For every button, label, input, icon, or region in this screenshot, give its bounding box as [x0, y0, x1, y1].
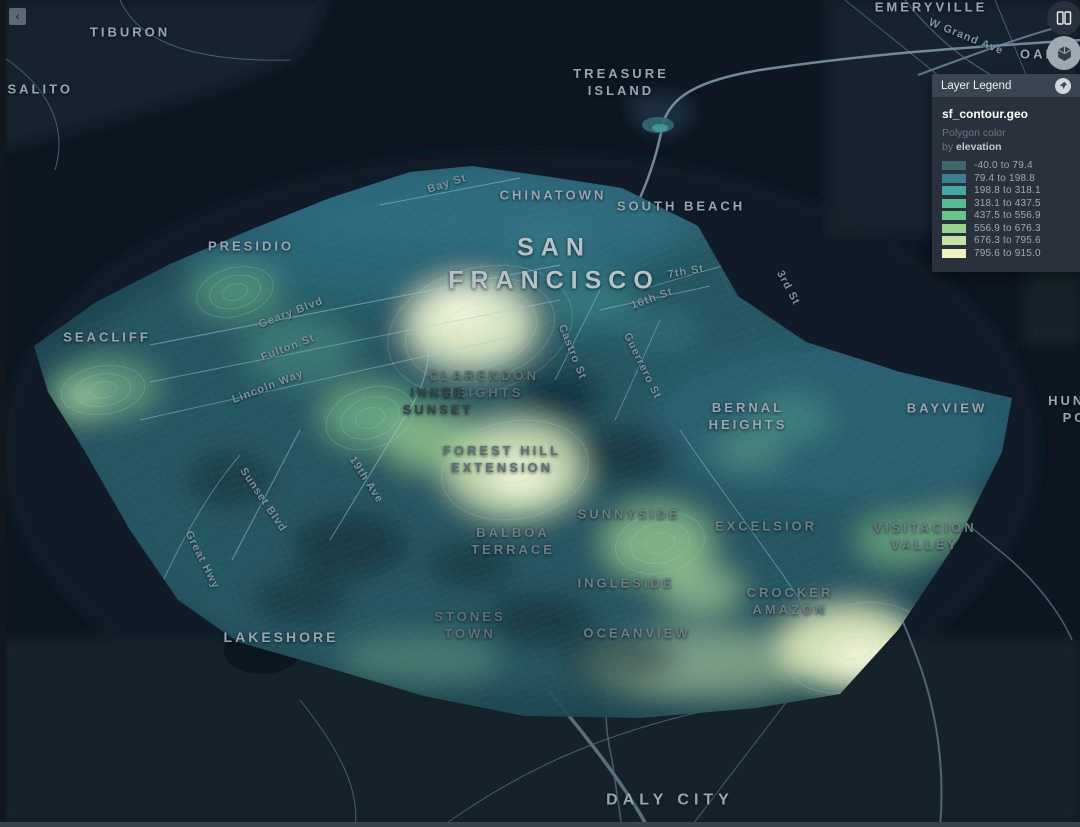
kepler-app: { "colors": { "map_bg": "#0d1721", "pane… — [0, 0, 1080, 827]
split-map-icon — [1056, 10, 1072, 26]
legend-swatch — [942, 161, 966, 170]
legend-range-label: 795.6 to 915.0 — [974, 248, 1041, 259]
legend-item: -40.0 to 79.4 — [942, 160, 1070, 173]
legend-swatch — [942, 224, 966, 233]
legend-swatch — [942, 236, 966, 245]
legend-pin-button[interactable] — [1055, 78, 1071, 94]
chevron-left-icon: ‹ — [16, 11, 20, 23]
bottom-edge — [0, 822, 1080, 827]
legend-swatch — [942, 199, 966, 208]
legend-swatch — [942, 174, 966, 183]
sidebar-collapse-button[interactable]: ‹ — [9, 8, 26, 25]
legend-swatch — [942, 186, 966, 195]
legend-by: by elevation — [942, 141, 1070, 153]
legend-range-label: 556.9 to 676.3 — [974, 223, 1041, 234]
layer-name: sf_contour.geo — [942, 107, 1070, 121]
legend-item: 437.5 to 556.9 — [942, 210, 1070, 223]
legend-item: 676.3 to 795.6 — [942, 235, 1070, 248]
legend-item: 795.6 to 915.0 — [942, 247, 1070, 260]
legend-range-label: 79.4 to 198.8 — [974, 173, 1035, 184]
pin-icon — [1059, 81, 1068, 90]
terrain-art — [0, 0, 1080, 827]
legend-field: elevation — [956, 141, 1002, 153]
legend-item: 556.9 to 676.3 — [942, 222, 1070, 235]
legend-item: 79.4 to 198.8 — [942, 172, 1070, 185]
map-canvas[interactable]: TIBURON SAUSALITO EMERYVILLE OAKLAND TRE… — [0, 0, 1080, 827]
legend-channel: Polygon color — [942, 126, 1070, 141]
legend-item: 198.8 to 318.1 — [942, 185, 1070, 198]
legend-title: Layer Legend — [941, 80, 1011, 92]
legend-range-label: 437.5 to 556.9 — [974, 210, 1041, 221]
toggle-3d-button[interactable] — [1047, 36, 1080, 70]
legend-item: 318.1 to 437.5 — [942, 197, 1070, 210]
legend-range-label: 198.8 to 318.1 — [974, 185, 1041, 196]
layer-legend-panel: Layer Legend sf_contour.geo Polygon colo… — [932, 74, 1080, 272]
cube-3d-icon — [1056, 45, 1073, 62]
legend-swatch — [942, 249, 966, 258]
collapsed-sidebar-edge — [0, 0, 6, 827]
legend-range-label: 676.3 to 795.6 — [974, 235, 1041, 246]
legend-range-label: 318.1 to 437.5 — [974, 198, 1041, 209]
legend-items: -40.0 to 79.4 79.4 to 198.8 198.8 to 318… — [942, 160, 1070, 260]
legend-body: sf_contour.geo Polygon color by elevatio… — [932, 97, 1080, 272]
legend-range-label: -40.0 to 79.4 — [974, 160, 1033, 171]
split-map-button[interactable] — [1047, 1, 1080, 35]
legend-swatch — [942, 211, 966, 220]
legend-header[interactable]: Layer Legend — [932, 74, 1080, 97]
